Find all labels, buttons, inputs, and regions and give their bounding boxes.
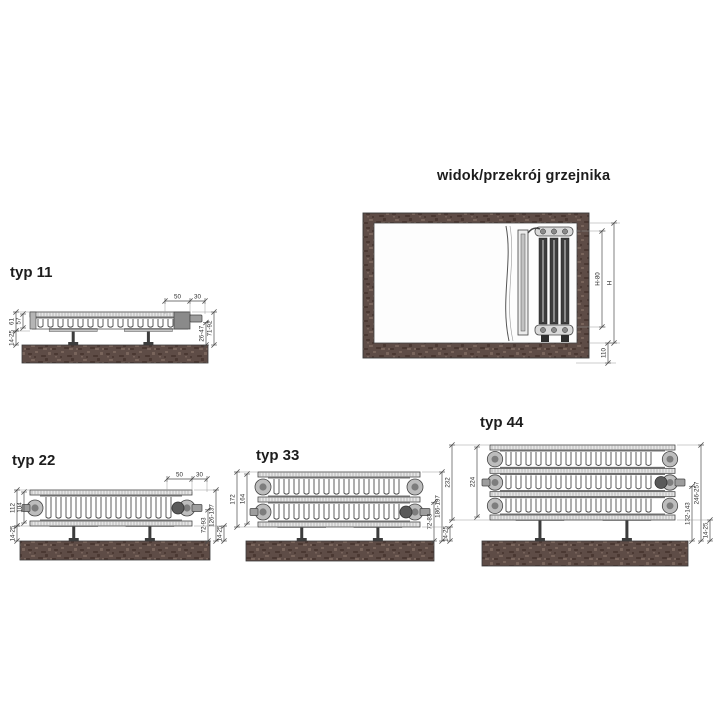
svg-text:50: 50	[176, 472, 183, 479]
wall-section-typ-4	[482, 541, 688, 566]
dim-depth-panel: 57	[16, 311, 27, 330]
svg-text:14-25: 14-25	[10, 525, 17, 541]
svg-text:H-80: H-80	[595, 272, 602, 286]
wall-section-typ-1	[22, 345, 208, 363]
dim-wall-gap: 14-25	[10, 523, 21, 543]
wall-section-typ-2	[20, 541, 210, 560]
svg-text:110: 110	[601, 348, 608, 358]
svg-text:50: 50	[174, 294, 181, 301]
dim-depth-total: 172	[230, 469, 241, 529]
svg-text:H: H	[607, 281, 614, 285]
svg-text:186-197: 186-197	[435, 495, 442, 518]
svg-text:172: 172	[230, 494, 237, 505]
dim-wall-gap: 14-25	[217, 523, 228, 543]
svg-text:132-143: 132-143	[685, 502, 692, 525]
svg-text:72-93: 72-93	[201, 517, 208, 533]
dim-wall-gap: 14-25	[9, 328, 20, 347]
radiator-catalog-page: widok/przekrój grzejnika typ 11 typ 22 t…	[0, 0, 720, 720]
radiator-top-view	[30, 312, 202, 345]
svg-text:14-25: 14-25	[217, 525, 224, 541]
svg-text:14-25: 14-25	[443, 526, 450, 542]
dim-front-range: 71-92	[207, 309, 218, 347]
svg-text:14-25: 14-25	[703, 522, 710, 538]
svg-text:224: 224	[470, 476, 477, 487]
svg-text:126-137: 126-137	[209, 504, 216, 527]
radiator-top-view	[250, 472, 430, 541]
svg-text:30: 30	[196, 472, 203, 479]
radiator-section-view	[363, 213, 589, 358]
radiator-top-view	[22, 490, 202, 541]
svg-text:71-92: 71-92	[207, 320, 214, 336]
dim-110: 110	[601, 340, 612, 365]
svg-text:14-25: 14-25	[9, 330, 16, 346]
dim-depth-panel: 224	[470, 444, 481, 519]
svg-text:30: 30	[194, 294, 201, 301]
svg-text:164: 164	[240, 493, 247, 504]
technical-drawing: 615714-2526-4771-92503011210414-2572-931…	[0, 0, 720, 720]
radiator-top-view	[482, 445, 685, 541]
dim-depth-panel: 164	[240, 471, 251, 526]
svg-text:57: 57	[16, 317, 23, 324]
dim-depth-total: 232	[445, 442, 456, 522]
svg-text:246-257: 246-257	[694, 481, 701, 504]
dim-h: H	[607, 220, 618, 345]
svg-text:61: 61	[9, 318, 16, 325]
svg-text:26-47: 26-47	[199, 325, 206, 341]
dim-h-minus-80: H-80	[595, 228, 606, 329]
wall-section-typ-3	[246, 541, 434, 561]
svg-text:112: 112	[10, 503, 17, 513]
dim-wall-gap: 14-25	[703, 517, 714, 543]
svg-text:232: 232	[445, 477, 452, 488]
svg-text:104: 104	[17, 502, 24, 513]
dim-wall-gap: 14-25	[443, 524, 454, 543]
